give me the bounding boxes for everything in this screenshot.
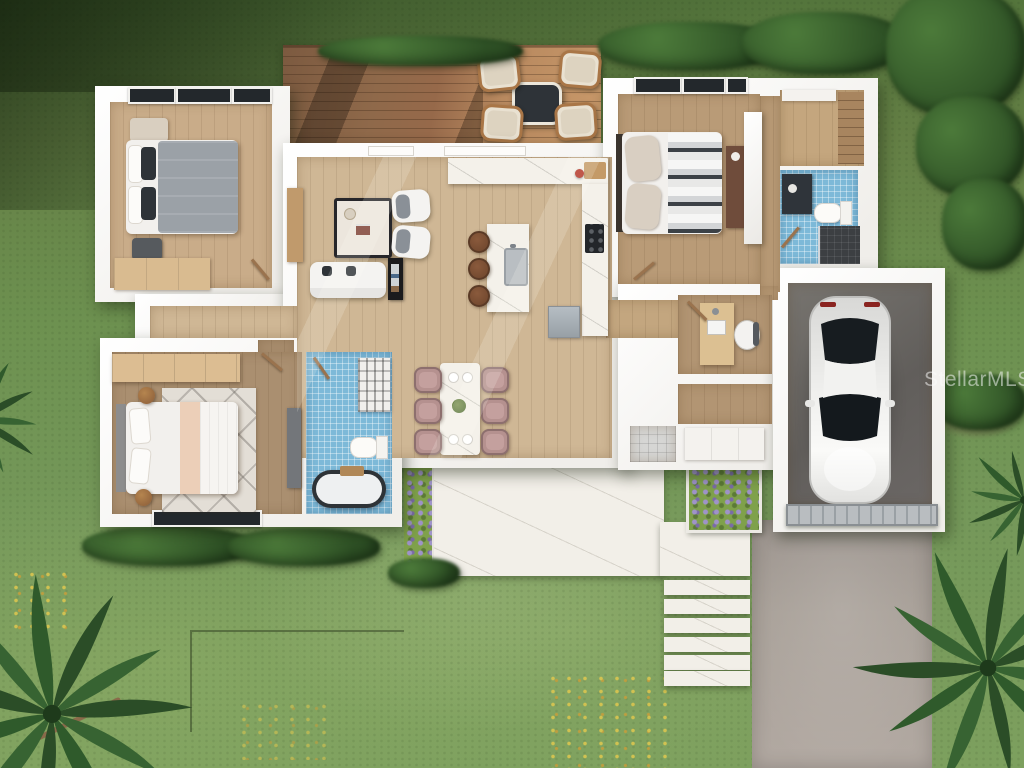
partition-wall [744, 112, 762, 244]
floor-plan-render: StellarMLS [0, 0, 1024, 768]
entry-cabinets [684, 428, 764, 460]
master-duvet [668, 133, 722, 233]
hedge [942, 178, 1024, 270]
nightstand [135, 489, 152, 506]
paver-step [664, 671, 750, 686]
wardrobe [112, 354, 240, 382]
bed-duvet [158, 141, 238, 233]
dining-chair [481, 367, 509, 393]
cutting-board [584, 162, 606, 179]
paver-step [664, 580, 750, 595]
master-pillow [624, 134, 663, 182]
bed2-pillow [128, 407, 151, 445]
window [128, 87, 176, 104]
window [232, 87, 272, 104]
dining-chair [481, 398, 509, 424]
window [176, 87, 232, 104]
shrubs [388, 558, 460, 588]
ottoman [130, 118, 168, 142]
front-patio [432, 464, 664, 576]
closet-shelving [838, 92, 864, 164]
centerpiece-plant [452, 399, 466, 413]
bed-bench [132, 238, 162, 260]
floor-master-hall [760, 96, 780, 292]
dresser [114, 258, 210, 290]
window-sill [368, 146, 414, 156]
bed-pillow-dark [141, 187, 156, 220]
vanity-sink [788, 184, 797, 193]
toilet [814, 203, 842, 223]
window-sill [444, 146, 526, 156]
driveway [752, 520, 932, 768]
shrubs [228, 528, 380, 566]
paver-step [664, 655, 750, 670]
car [805, 294, 895, 506]
armchair [391, 224, 432, 259]
tub-tray [340, 466, 364, 476]
floor-corridor [606, 300, 682, 338]
table-books [356, 226, 370, 235]
plate [448, 434, 459, 445]
dresser-decor [731, 152, 740, 161]
planter-front [686, 464, 762, 533]
garage-door [786, 504, 938, 526]
shower [818, 226, 860, 264]
plate [462, 434, 473, 445]
bath2-vanity [358, 358, 390, 412]
hedge [318, 36, 523, 66]
headboard-2 [116, 404, 126, 492]
kitchen-counter-right [582, 184, 608, 336]
dining-chair [414, 429, 442, 455]
sideboard [287, 188, 303, 262]
shrubs [934, 374, 1024, 430]
floor-entry-tile [630, 426, 676, 462]
bar-stool [468, 285, 490, 307]
bathtub-interior [316, 474, 382, 504]
dining-chair [414, 367, 442, 393]
armchair [391, 189, 431, 224]
dining-chair [481, 429, 509, 455]
cooktop [585, 224, 604, 253]
bed2-blanket [180, 402, 200, 494]
bath-vanity [782, 174, 812, 214]
desk-decor [712, 308, 719, 315]
floor-entry-hall [678, 384, 772, 424]
window [682, 77, 726, 94]
plate [462, 372, 473, 383]
sofa-pillow [346, 266, 356, 276]
bed2-pillow [128, 447, 152, 485]
toilet-tank [840, 201, 852, 225]
hedge [742, 12, 907, 74]
nightstand [138, 387, 155, 404]
window [634, 77, 682, 94]
bed-pillow-dark [141, 147, 156, 180]
closet-cabinet [782, 90, 836, 101]
island-sink [504, 248, 528, 286]
laptop [707, 320, 726, 335]
master-pillow [624, 183, 662, 231]
outdoor-chair [480, 104, 524, 144]
outdoor-chair [557, 49, 602, 90]
floor-hallway [150, 306, 298, 338]
bar-stool [468, 258, 490, 280]
table-decor [344, 208, 356, 220]
refrigerator [548, 306, 580, 338]
bedroom2-dresser [287, 408, 301, 488]
bed2-duvet [200, 402, 238, 494]
bar-stool [468, 231, 490, 253]
kettle [575, 169, 584, 178]
office-chair-back [753, 322, 759, 346]
island-faucet [510, 244, 516, 248]
tv-screen [391, 264, 399, 292]
outdoor-chair [554, 102, 598, 142]
window [726, 77, 748, 94]
paver-step [664, 599, 750, 614]
window [152, 510, 262, 527]
paver-step [664, 618, 750, 633]
sofa-pillow [322, 266, 332, 276]
dining-chair [414, 398, 442, 424]
toilet-2 [350, 437, 378, 458]
paver-step [664, 637, 750, 652]
toilet-2-tank [376, 436, 388, 459]
plate [448, 372, 459, 383]
